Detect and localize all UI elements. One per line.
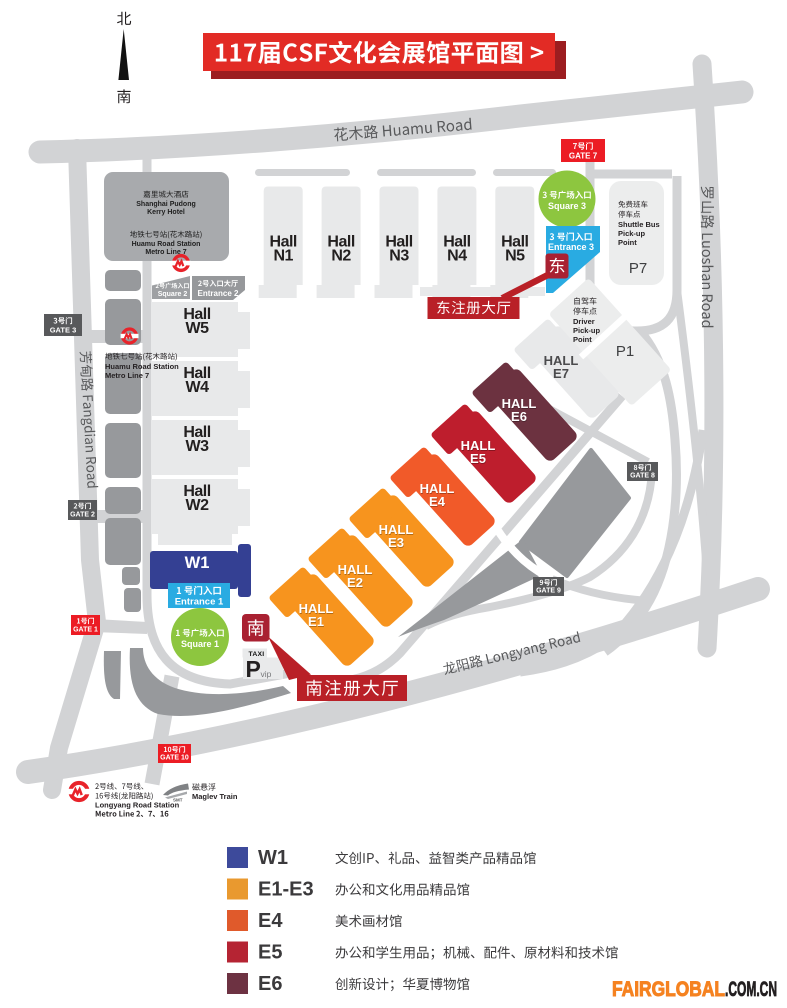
svg-text:N2: N2 (331, 248, 351, 265)
svg-text:E5: E5 (470, 451, 486, 466)
svg-text:Huamu Road Station: Huamu Road Station (105, 362, 179, 371)
svg-text:Pick-up: Pick-up (618, 229, 646, 238)
svg-text:W4: W4 (186, 379, 210, 396)
svg-text:P: P (246, 656, 261, 682)
svg-text:GATE 2: GATE 2 (70, 512, 95, 519)
svg-text:Square 2: Square 2 (158, 291, 188, 298)
svg-text:E1: E1 (308, 614, 324, 629)
svg-text:P1: P1 (616, 343, 634, 360)
svg-text:Shuttle Bus: Shuttle Bus (618, 220, 660, 229)
svg-text:P7: P7 (629, 260, 647, 277)
svg-text:N3: N3 (389, 248, 409, 265)
svg-text:W2: W2 (186, 497, 210, 514)
svg-text:SMT: SMT (173, 798, 183, 803)
svg-text:Entrance 1: Entrance 1 (175, 597, 224, 608)
svg-text:Driver: Driver (573, 317, 595, 326)
svg-text:GATE 1: GATE 1 (73, 627, 98, 634)
svg-text:W1: W1 (258, 847, 288, 869)
svg-text:GATE 10: GATE 10 (160, 755, 189, 762)
svg-text:GATE 7: GATE 7 (569, 152, 598, 161)
svg-text:Point: Point (573, 335, 592, 344)
svg-text:Maglev Train: Maglev Train (192, 792, 238, 801)
svg-text:vip: vip (261, 669, 272, 679)
svg-text:E5: E5 (258, 942, 282, 964)
svg-text:W1: W1 (185, 554, 210, 572)
svg-text:E1-E3: E1-E3 (258, 879, 314, 901)
svg-text:E2: E2 (347, 575, 363, 590)
svg-text:Square 3: Square 3 (548, 201, 586, 211)
svg-text:E6: E6 (511, 409, 527, 424)
svg-text:Metro Line 7: Metro Line 7 (105, 371, 149, 380)
svg-text:.COM.CN: .COM.CN (725, 978, 777, 1001)
svg-text:E3: E3 (388, 535, 404, 550)
svg-text:Square 1: Square 1 (181, 639, 219, 649)
svg-text:E6: E6 (258, 973, 282, 995)
svg-text:Longyang Road Station: Longyang Road Station (95, 801, 180, 810)
svg-text:GATE 3: GATE 3 (50, 326, 77, 335)
svg-text:Point: Point (618, 238, 637, 247)
svg-text:Entrance 2: Entrance 2 (198, 289, 239, 298)
svg-text:GATE 8: GATE 8 (630, 473, 655, 480)
svg-text:W5: W5 (186, 320, 210, 337)
svg-text:N5: N5 (505, 248, 525, 265)
svg-text:Entrance 3: Entrance 3 (548, 242, 594, 252)
svg-text:E4: E4 (429, 494, 446, 509)
svg-text:Pick-up: Pick-up (573, 326, 601, 335)
svg-text:N1: N1 (273, 248, 293, 265)
svg-text:W3: W3 (186, 438, 210, 455)
svg-text:GATE 9: GATE 9 (536, 588, 561, 595)
svg-text:Kerry Hotel: Kerry Hotel (147, 209, 185, 216)
svg-text:FAIRGLOBAL: FAIRGLOBAL (612, 978, 725, 1001)
svg-text:N4: N4 (447, 248, 467, 265)
svg-text:E7: E7 (553, 366, 569, 381)
svg-text:Shanghai Pudong: Shanghai Pudong (136, 201, 196, 208)
svg-text:E4: E4 (258, 910, 283, 932)
svg-text:Huamu Road Station: Huamu Road Station (132, 241, 201, 248)
